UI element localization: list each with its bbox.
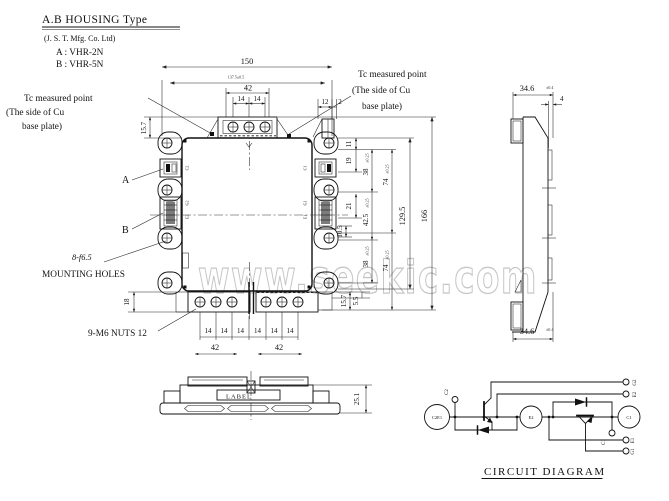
- svg-text:42: 42: [211, 343, 219, 352]
- dim-42-top: 42: [244, 84, 252, 93]
- svg-text:±0.4: ±0.4: [546, 327, 553, 332]
- igbt-1: [577, 416, 593, 452]
- connector-a-right: [315, 159, 336, 177]
- drawing-canvas: A.B HOUSING Type (J. S. T. Mfg. Co. Ltd)…: [0, 0, 669, 501]
- dim-inner: 137.5±0.5: [228, 75, 245, 80]
- label-plate: LABEL: [226, 394, 252, 401]
- drawing-sheet: A.B HOUSING Type (J. S. T. Mfg. Co. Ltd)…: [0, 0, 669, 501]
- svg-text:E1: E1: [303, 215, 308, 220]
- svg-text:14: 14: [254, 95, 262, 103]
- side-tab-detail: [183, 253, 189, 268]
- bottom-view: LABEL 25.1: [160, 371, 372, 420]
- dim-55: 5.5: [352, 296, 360, 305]
- svg-text:±0.25: ±0.25: [365, 198, 370, 207]
- page-title: A.B HOUSING Type: [42, 14, 147, 26]
- dim-21: 21: [345, 202, 353, 210]
- terminal-c2e1: C2E1: [432, 415, 442, 420]
- aux-terminal-e1: E1: [631, 437, 636, 443]
- leader-line: [148, 98, 212, 134]
- dim-105: 10.5: [336, 225, 344, 238]
- svg-text:E2: E2: [185, 215, 190, 220]
- dim-11: 11: [345, 140, 353, 147]
- mounting-text: MOUNTING HOLES: [42, 270, 125, 280]
- dim-12: 12: [322, 98, 330, 106]
- type-b: B : VHR-5N: [56, 60, 104, 70]
- svg-text:14: 14: [254, 327, 262, 335]
- svg-text:14: 14: [238, 95, 246, 103]
- svg-text:±0.25: ±0.25: [385, 250, 390, 259]
- svg-text:74: 74: [382, 178, 390, 186]
- connector-b-right: [315, 197, 336, 229]
- title-block: A.B HOUSING Type (J. S. T. Mfg. Co. Ltd)…: [42, 14, 180, 70]
- dim-2: 2: [338, 98, 342, 106]
- label-a: A: [122, 175, 130, 186]
- diode-1: [553, 398, 612, 417]
- aux-terminal-c1: C1: [602, 439, 607, 445]
- svg-text:34.6: 34.6: [520, 327, 535, 336]
- igbt-2: [484, 382, 493, 430]
- aux-terminal-g1: G1: [631, 448, 636, 455]
- svg-text:42: 42: [275, 343, 283, 352]
- tc-point-marker-left: [210, 132, 214, 136]
- dim-1295: 129.5: [398, 207, 407, 226]
- aux-terminal-g2: G2: [633, 379, 638, 386]
- svg-text:Tc measured point: Tc measured point: [24, 94, 93, 104]
- circuit-diagram: C2E1 E2 C1 C2 G2: [425, 379, 641, 479]
- type-a: A : VHR-2N: [56, 48, 104, 58]
- svg-text:38: 38: [362, 168, 370, 176]
- svg-text:14: 14: [237, 327, 245, 335]
- svg-text:base plate): base plate): [362, 101, 402, 112]
- svg-text:14: 14: [287, 327, 295, 335]
- svg-text:14: 14: [271, 327, 279, 335]
- terminal-e2: E2: [529, 415, 534, 420]
- nuts-note: 9-M6 NUTS 12: [88, 329, 147, 339]
- svg-text:(The side of Cu: (The side of Cu: [352, 85, 410, 96]
- svg-text:C1: C1: [303, 166, 308, 171]
- terminal-c1: C1: [626, 415, 631, 420]
- dim-251: 25.1: [353, 392, 361, 405]
- dim-425: 42.5: [362, 213, 370, 226]
- svg-text:34.6: 34.6: [520, 84, 535, 93]
- dim-19: 19: [345, 157, 353, 165]
- manufacturer: (J. S. T. Mfg. Co. Ltd): [44, 34, 116, 43]
- svg-text:±0.25: ±0.25: [365, 246, 370, 255]
- case-pin-labels: C2 G2 E2 C1 G1 E1: [185, 166, 308, 220]
- svg-text:14: 14: [205, 327, 213, 335]
- dim-157-top: 15.7: [140, 121, 148, 134]
- svg-text:base plate): base plate): [22, 121, 62, 132]
- diode-2: [455, 417, 517, 434]
- dim-150: 150: [241, 57, 253, 66]
- dim-157-bottom: 15.7: [340, 294, 348, 307]
- mounting-spec: 8-f6.5: [72, 253, 92, 262]
- connector-a-left: [160, 159, 181, 177]
- aux-terminal-c2: C2: [445, 389, 450, 395]
- svg-text:G2: G2: [185, 200, 190, 205]
- svg-text:±0.25: ±0.25: [385, 164, 390, 173]
- top-terminal-block: [207, 117, 290, 147]
- svg-text:(The side of Cu: (The side of Cu: [6, 107, 64, 118]
- svg-text:±0.4: ±0.4: [546, 85, 553, 90]
- dim-4: 4: [560, 95, 564, 103]
- callouts: A B 8-f6.5 MOUNTING HOLES 9-M6 NUTS 12: [42, 169, 196, 339]
- svg-text:Tc measured point: Tc measured point: [358, 70, 427, 80]
- svg-text:74: 74: [382, 264, 390, 272]
- svg-text:C2: C2: [185, 166, 190, 171]
- svg-text:G1: G1: [303, 200, 308, 205]
- svg-text:38: 38: [362, 260, 370, 268]
- tc-note-left: Tc measured point (The side of Cu base p…: [6, 94, 212, 134]
- svg-text:±0.25: ±0.25: [365, 153, 370, 162]
- tc-note-right: Tc measured point (The side of Cu base p…: [289, 70, 427, 134]
- aux-terminal-e2: E2: [633, 391, 638, 397]
- circuit-caption: CIRCUIT DIAGRAM: [484, 466, 606, 478]
- dim-18: 18: [123, 298, 131, 306]
- svg-text:14: 14: [221, 327, 229, 335]
- dim-166: 166: [420, 210, 429, 222]
- label-b: B: [122, 225, 129, 236]
- connector-b-left: [160, 197, 181, 229]
